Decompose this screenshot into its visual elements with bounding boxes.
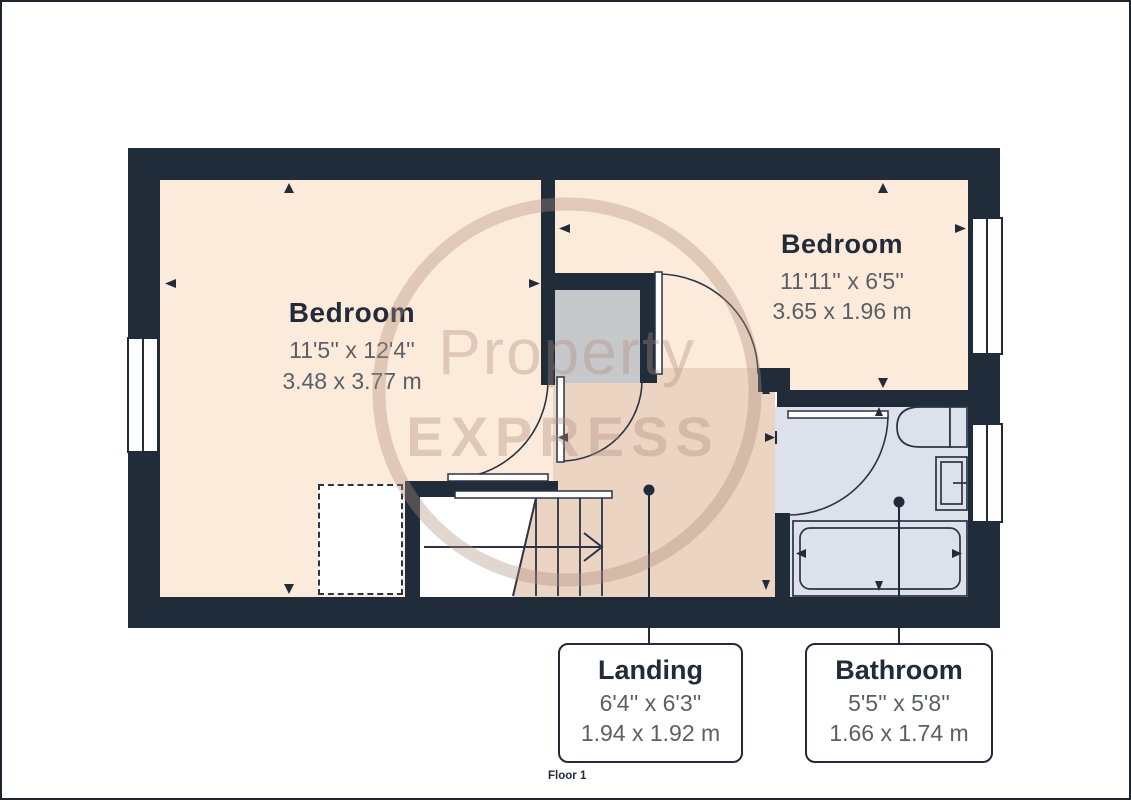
arrow-down-icon <box>284 584 294 594</box>
door-bathroom <box>788 411 888 515</box>
arrow-left-icon <box>559 224 570 233</box>
watermark-circle <box>379 204 755 580</box>
bathroom-dims-metric: 1.66 x 1.74 m <box>807 718 991 748</box>
arrow-up-icon <box>284 183 294 193</box>
watermark: Property EXPRESS <box>379 204 755 580</box>
label-leaders <box>649 492 899 643</box>
landing-title: Landing <box>560 652 741 688</box>
arrow-left-icon <box>165 279 176 288</box>
watermark-line2: EXPRESS <box>406 405 720 468</box>
arrow-down-icon <box>878 378 888 388</box>
landing-leader-dot <box>644 485 655 496</box>
stair-handrail <box>455 491 612 498</box>
landing-label-box: Landing 6'4'' x 6'3'' 1.94 x 1.92 m <box>558 643 743 763</box>
bathroom-title: Bathroom <box>807 652 991 688</box>
measurement-arrows <box>165 183 966 594</box>
bathroom-dims-imperial: 5'5'' x 5'8'' <box>807 688 991 718</box>
arrow-up-icon <box>878 183 888 193</box>
sink <box>936 457 967 510</box>
floor-label: Floor 1 <box>548 770 586 782</box>
bathroom-label-box: Bathroom 5'5'' x 5'8'' 1.66 x 1.74 m <box>805 643 993 763</box>
arrow-right-icon <box>765 433 775 442</box>
arrow-right-icon <box>955 224 966 233</box>
bathroom-leader-dot <box>894 497 905 508</box>
arrow-down-icon <box>762 580 770 590</box>
landing-dims-imperial: 6'4'' x 6'3'' <box>560 688 741 718</box>
watermark-line1: Property <box>438 316 696 388</box>
arrow-up-icon <box>762 385 770 394</box>
landing-dims-metric: 1.94 x 1.92 m <box>560 718 741 748</box>
arrow-left-icon <box>796 549 806 558</box>
floorplan-canvas: Bedroom 11'5'' x 12'4'' 3.48 x 3.77 m Be… <box>0 0 1131 800</box>
toilet <box>897 407 967 447</box>
arrow-right-icon <box>529 279 540 288</box>
